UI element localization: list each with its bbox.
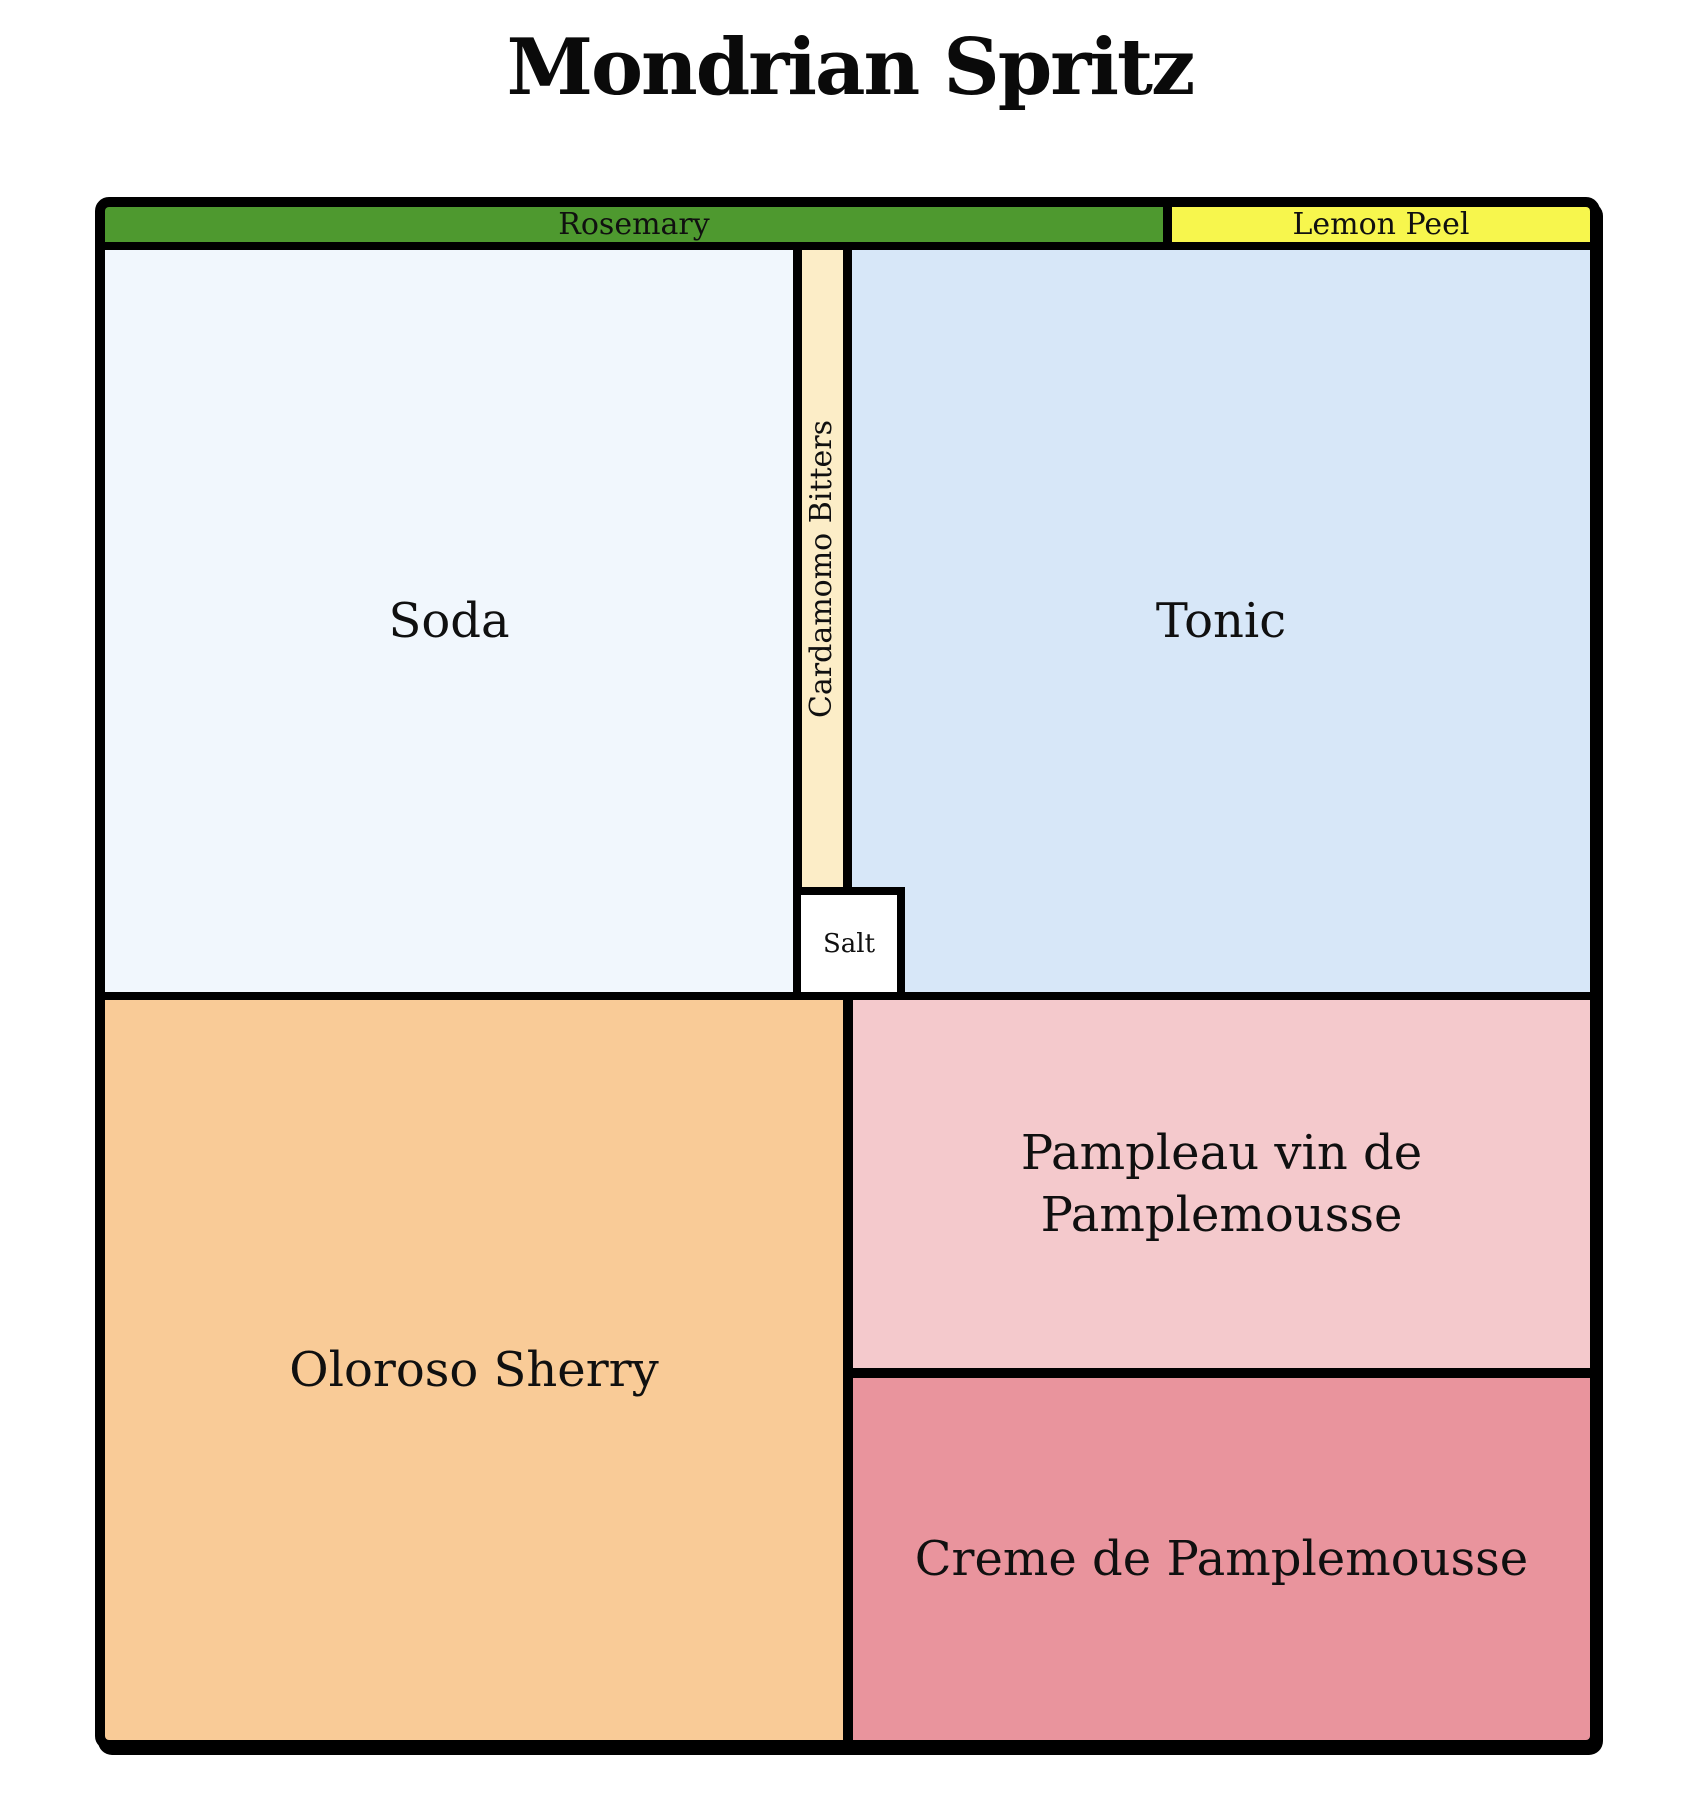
region-tonic-label: Tonic bbox=[1156, 590, 1286, 652]
region-oloroso-sherry: Oloroso Sherry bbox=[105, 1000, 843, 1740]
region-lemon-peel-label: Lemon Peel bbox=[1293, 210, 1470, 240]
region-creme-de-pamplemousse: Creme de Pamplemousse bbox=[853, 1378, 1590, 1740]
region-rosemary: Rosemary bbox=[105, 207, 1163, 242]
region-soda-label: Soda bbox=[388, 590, 509, 652]
region-oloroso-sherry-label: Oloroso Sherry bbox=[289, 1339, 658, 1401]
mondrian-grid: Rosemary Lemon Peel Soda Cardamomo Bitte… bbox=[95, 197, 1600, 1750]
region-cardamomo-bitters: Cardamomo Bitters bbox=[802, 250, 843, 887]
region-lemon-peel: Lemon Peel bbox=[1172, 207, 1590, 242]
region-creme-de-pamplemousse-label: Creme de Pamplemousse bbox=[915, 1528, 1528, 1590]
page-title: Mondrian Spritz bbox=[0, 22, 1700, 113]
region-pampleau-vin-label: Pampleau vin de Pamplemousse bbox=[952, 1122, 1492, 1247]
region-salt: Salt bbox=[793, 887, 905, 1000]
region-pampleau-vin: Pampleau vin de Pamplemousse bbox=[853, 1000, 1590, 1368]
region-rosemary-label: Rosemary bbox=[558, 210, 709, 240]
mondrian-spritz-page: Mondrian Spritz Rosemary Lemon Peel Soda… bbox=[0, 0, 1700, 1815]
region-soda: Soda bbox=[105, 250, 793, 992]
mondrian-frame: Rosemary Lemon Peel Soda Cardamomo Bitte… bbox=[95, 197, 1600, 1750]
region-salt-label: Salt bbox=[823, 931, 875, 957]
region-tonic: Tonic bbox=[852, 250, 1590, 992]
region-cardamomo-bitters-label: Cardamomo Bitters bbox=[808, 419, 838, 717]
